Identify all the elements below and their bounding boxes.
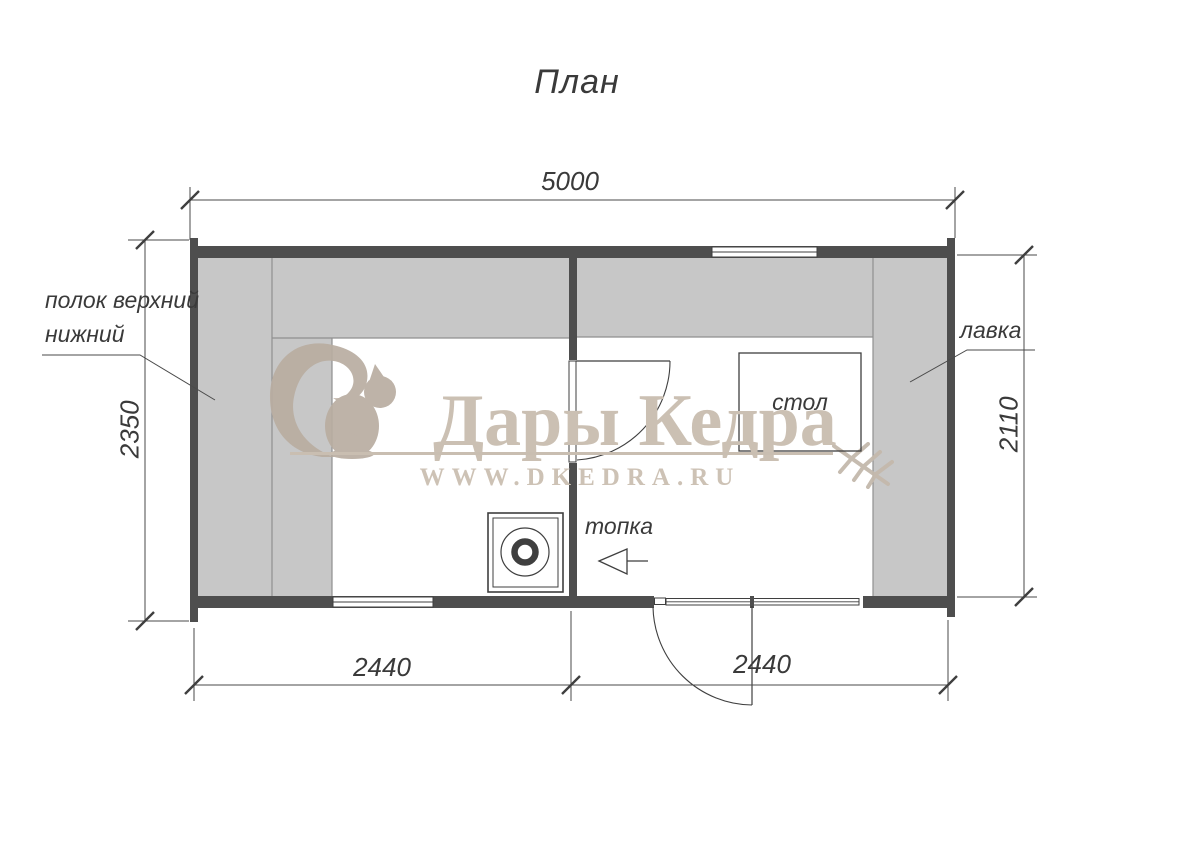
firebox-arrow [599,549,648,574]
squirrel-ear [369,364,386,382]
bench-top-band-right-room [577,258,873,337]
stove-symbol [488,513,563,592]
door-jamb [655,598,666,605]
dim-bottom-right: 2440 [712,650,812,679]
watermark-url: WWW.DKEDRA.RU [415,464,745,492]
label-firebox: топка [585,514,653,539]
floor-plan-page: Дары Кедра WWW.DKEDRA.RU План 5000 2350 … [0,0,1200,848]
label-bench: лавка [960,318,1021,343]
label-shelf-upper: полок верхний [45,288,199,313]
squirrel-logo [270,343,396,459]
wall-right [947,238,955,617]
dim-right-depth: 2110 [995,374,1024,474]
bench-right-column [873,258,947,596]
dim-total-width: 5000 [520,167,620,196]
watermark-underline [290,452,833,455]
dim-left-depth: 2350 [116,379,145,479]
shelf-upper-column [198,258,272,596]
label-table: стол [755,390,845,415]
dim-bottom-left: 2440 [332,653,432,682]
label-shelf-lower: нижний [45,322,125,347]
partition-upper [569,246,577,360]
page-title: План [497,64,657,101]
